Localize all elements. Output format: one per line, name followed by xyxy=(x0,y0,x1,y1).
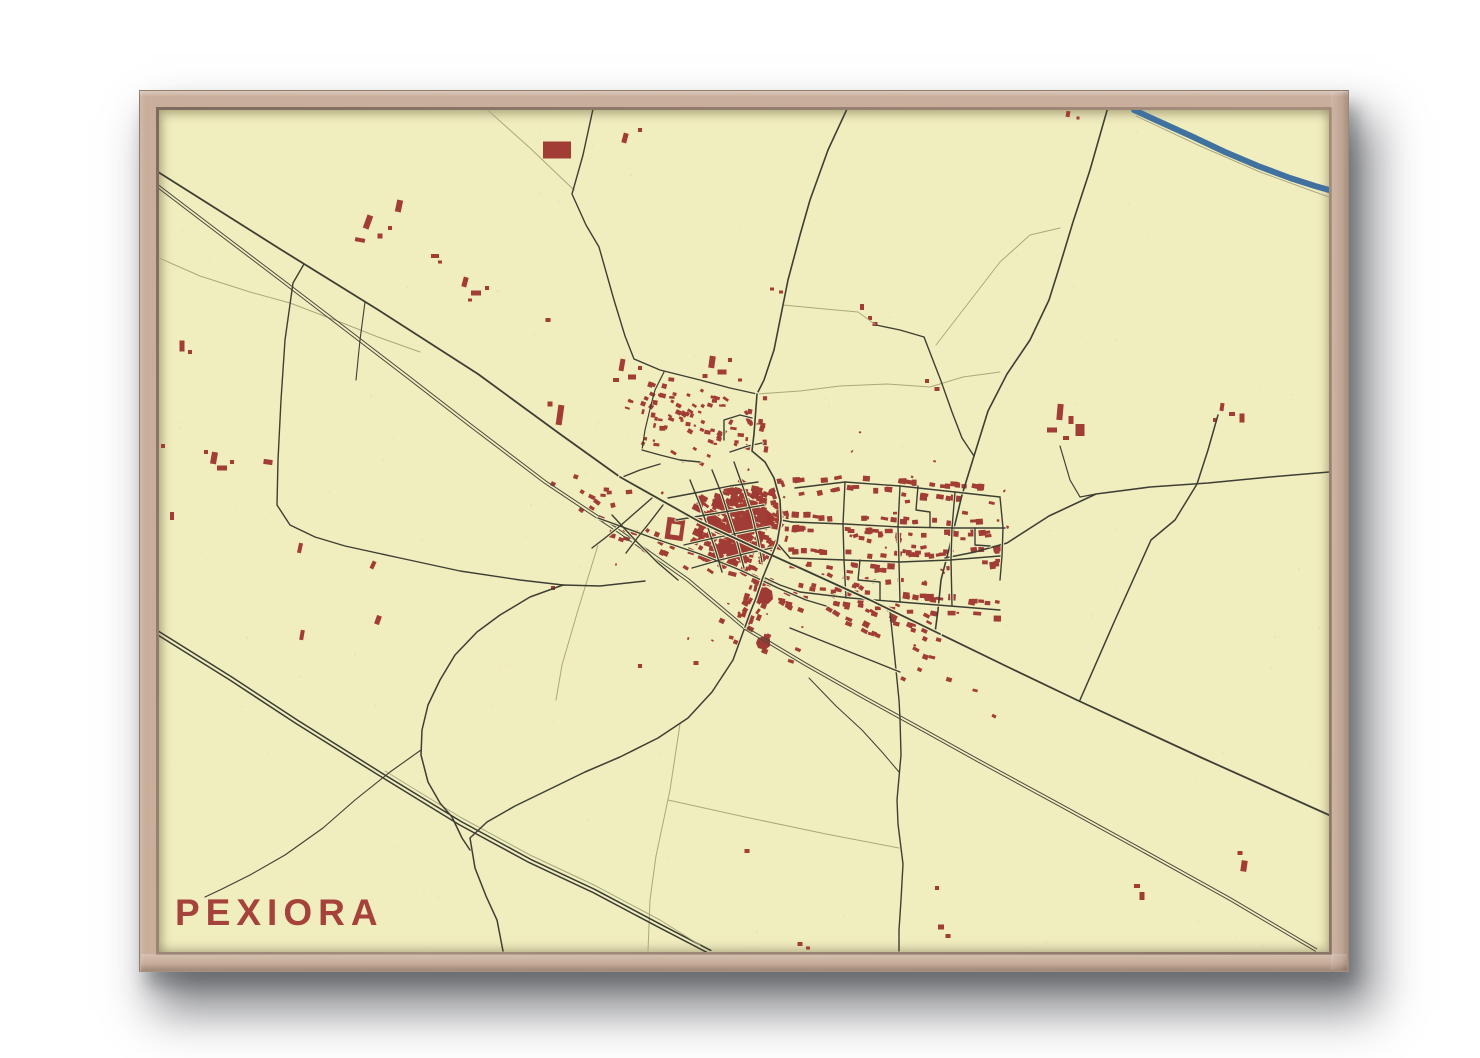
svg-text:PEXIORA: PEXIORA xyxy=(175,892,384,933)
